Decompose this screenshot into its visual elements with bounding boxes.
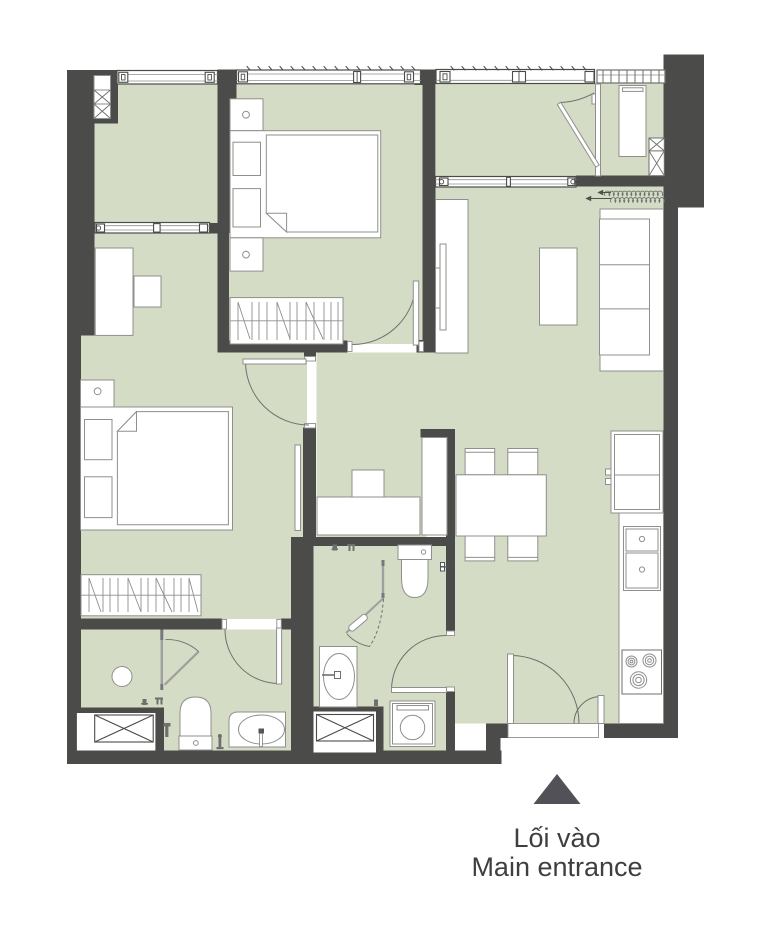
svg-text:Main entrance: Main entrance xyxy=(471,852,642,882)
svg-text:Lối vào: Lối vào xyxy=(513,823,600,853)
